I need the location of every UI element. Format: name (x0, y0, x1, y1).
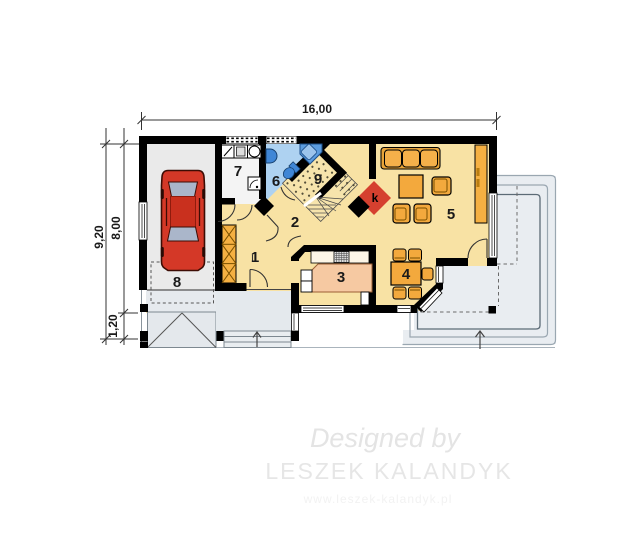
svg-text:9: 9 (314, 171, 322, 188)
svg-text:6: 6 (272, 173, 280, 190)
svg-text:www.leszek-kalandyk.pl: www.leszek-kalandyk.pl (303, 492, 453, 506)
svg-text:1: 1 (251, 249, 259, 266)
svg-text:8,00: 8,00 (109, 216, 123, 240)
svg-text:5: 5 (447, 206, 455, 223)
svg-text:k: k (372, 191, 379, 205)
svg-text:8: 8 (173, 274, 181, 291)
svg-text:16,00: 16,00 (302, 102, 332, 116)
svg-text:Designed by: Designed by (310, 423, 462, 453)
svg-text:7: 7 (234, 163, 242, 180)
svg-text:2: 2 (291, 214, 299, 231)
svg-text:1,20: 1,20 (106, 314, 120, 338)
svg-text:LESZEK KALANDYK: LESZEK KALANDYK (265, 458, 512, 484)
svg-text:4: 4 (402, 266, 411, 283)
svg-text:3: 3 (337, 269, 345, 286)
svg-text:9,20: 9,20 (92, 225, 106, 249)
